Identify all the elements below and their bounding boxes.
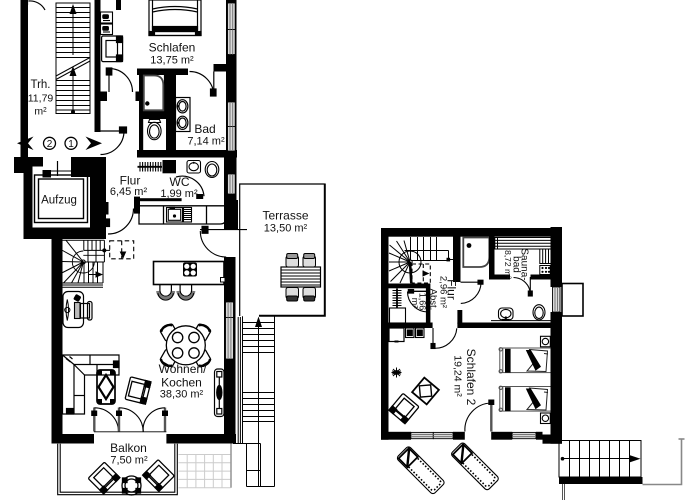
- svg-text:Kochen: Kochen: [161, 376, 202, 390]
- svg-text:Abst.: Abst.: [428, 289, 439, 311]
- svg-text:13,50 m²: 13,50 m²: [264, 223, 308, 235]
- svg-text:Schlafen: Schlafen: [149, 41, 196, 55]
- svg-text:Balkon: Balkon: [110, 441, 147, 455]
- svg-text:7,50 m²: 7,50 m²: [110, 455, 148, 467]
- svg-text:19,24 m²: 19,24 m²: [451, 355, 463, 397]
- svg-text:8,72 m²: 8,72 m²: [503, 250, 513, 279]
- svg-text:Trh.: Trh.: [30, 79, 50, 91]
- svg-text:1: 1: [68, 139, 74, 150]
- svg-text:m²: m²: [410, 298, 420, 309]
- svg-text:7,14 m²: 7,14 m²: [187, 136, 225, 148]
- svg-text:2: 2: [47, 139, 53, 150]
- svg-text:Wohnen/: Wohnen/: [159, 362, 207, 376]
- svg-text:13,75 m²: 13,75 m²: [150, 55, 194, 67]
- svg-text:11,79: 11,79: [28, 93, 54, 105]
- svg-text:38,30 m²: 38,30 m²: [160, 389, 204, 401]
- svg-text:Terrasse: Terrasse: [262, 209, 308, 223]
- svg-text:Aufzug: Aufzug: [41, 195, 77, 207]
- svg-text:Bad: Bad: [194, 122, 215, 136]
- svg-text:Schlafen 2: Schlafen 2: [464, 349, 478, 406]
- svg-text:m²: m²: [34, 106, 47, 118]
- svg-text:6,45 m²: 6,45 m²: [110, 186, 148, 198]
